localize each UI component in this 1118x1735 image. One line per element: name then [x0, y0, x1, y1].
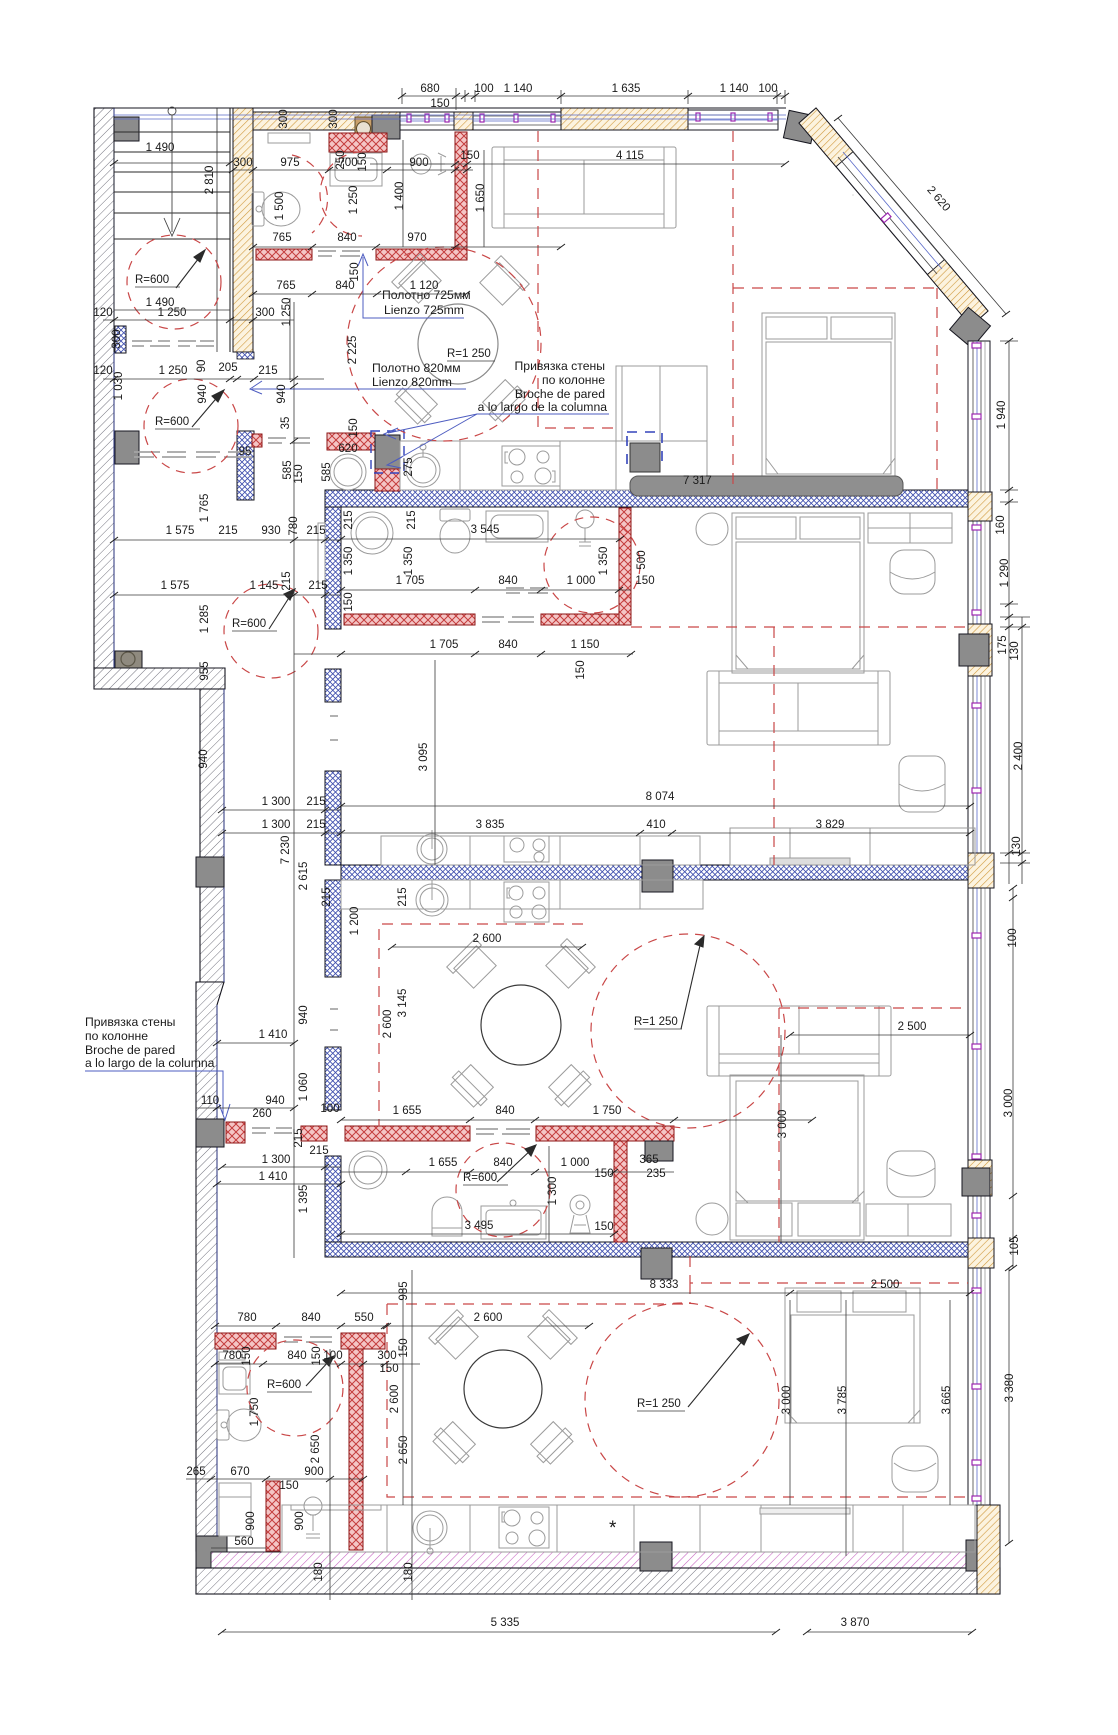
- svg-text:R=600: R=600: [463, 1172, 497, 1184]
- svg-text:205: 205: [218, 362, 237, 374]
- svg-text:930: 930: [261, 525, 280, 537]
- svg-text:1 120: 1 120: [410, 280, 439, 292]
- svg-text:2 810: 2 810: [204, 166, 216, 195]
- svg-text:1 060: 1 060: [298, 1073, 310, 1102]
- svg-text:215: 215: [281, 571, 293, 590]
- svg-text:7 317: 7 317: [683, 475, 712, 487]
- svg-text:150: 150: [635, 575, 654, 587]
- svg-text:1 490: 1 490: [146, 142, 175, 154]
- svg-text:1 575: 1 575: [161, 580, 190, 592]
- svg-text:1 350: 1 350: [403, 547, 415, 576]
- svg-text:365: 365: [639, 1154, 658, 1166]
- svg-text:1 490: 1 490: [146, 297, 175, 309]
- svg-text:8 333: 8 333: [650, 1279, 679, 1291]
- svg-text:1 705: 1 705: [430, 639, 459, 651]
- svg-text:840: 840: [301, 1312, 320, 1324]
- svg-text:1 000: 1 000: [567, 575, 596, 587]
- svg-text:215: 215: [258, 365, 277, 377]
- svg-text:840: 840: [337, 232, 356, 244]
- svg-text:1 655: 1 655: [429, 1157, 458, 1169]
- svg-text:900: 900: [304, 1466, 323, 1478]
- svg-text:1 350: 1 350: [343, 547, 355, 576]
- svg-text:150: 150: [293, 464, 305, 483]
- svg-text:Broche de pared: Broche de pared: [515, 387, 605, 401]
- svg-text:560: 560: [234, 1536, 253, 1548]
- svg-text:150: 150: [594, 1168, 613, 1180]
- svg-text:215: 215: [321, 887, 333, 906]
- svg-text:1 575: 1 575: [166, 525, 195, 537]
- svg-text:215: 215: [343, 510, 355, 529]
- svg-text:300: 300: [278, 109, 290, 128]
- svg-text:670: 670: [230, 1466, 249, 1478]
- svg-text:1 300: 1 300: [262, 819, 291, 831]
- svg-text:260: 260: [252, 1108, 271, 1120]
- svg-text:1 290: 1 290: [999, 559, 1011, 588]
- svg-text:3 000: 3 000: [777, 1110, 789, 1139]
- svg-text:840: 840: [287, 1350, 306, 1362]
- svg-text:1 285: 1 285: [199, 605, 211, 634]
- svg-text:по колонне: по колонне: [85, 1029, 148, 1043]
- svg-text:3 495: 3 495: [465, 1220, 494, 1232]
- svg-text:175: 175: [997, 635, 1009, 654]
- svg-text:130: 130: [1011, 836, 1023, 855]
- svg-text:1 140: 1 140: [720, 83, 749, 95]
- svg-text:840: 840: [498, 639, 517, 651]
- svg-text:985: 985: [398, 1281, 410, 1300]
- svg-text:*: *: [609, 1518, 617, 1539]
- svg-text:Привязка стены: Привязка стены: [515, 359, 605, 373]
- svg-text:150: 150: [379, 1363, 398, 1375]
- svg-text:150: 150: [460, 150, 479, 162]
- svg-text:a lo largo de la columna: a lo largo de la columna: [85, 1056, 215, 1070]
- svg-text:3 665: 3 665: [941, 1386, 953, 1415]
- svg-text:R=600: R=600: [267, 1379, 301, 1391]
- svg-text:110: 110: [201, 1095, 219, 1107]
- svg-text:300: 300: [377, 1350, 396, 1362]
- svg-text:3 095: 3 095: [418, 743, 430, 772]
- svg-text:680: 680: [420, 83, 439, 95]
- svg-text:215: 215: [306, 796, 325, 808]
- svg-text:8 074: 8 074: [646, 791, 675, 803]
- svg-text:2 225: 2 225: [347, 336, 359, 365]
- svg-text:90: 90: [196, 360, 208, 373]
- svg-text:130: 130: [1009, 641, 1021, 660]
- svg-text:250: 250: [335, 150, 347, 169]
- svg-text:Lienzo 725mm: Lienzo 725mm: [384, 303, 464, 317]
- svg-text:100: 100: [474, 83, 493, 95]
- svg-text:840: 840: [495, 1105, 514, 1117]
- svg-text:R=1 250: R=1 250: [634, 1016, 678, 1028]
- svg-text:1 250: 1 250: [348, 186, 360, 215]
- svg-text:2 600: 2 600: [389, 1385, 401, 1414]
- svg-text:235: 235: [646, 1168, 665, 1180]
- svg-text:180: 180: [313, 1562, 325, 1581]
- svg-text:215: 215: [309, 1145, 328, 1157]
- svg-text:Broche de pared: Broche de pared: [85, 1043, 175, 1057]
- svg-text:1 750: 1 750: [249, 1398, 261, 1427]
- svg-text:500: 500: [636, 550, 648, 569]
- svg-text:150: 150: [279, 1480, 298, 1492]
- svg-text:120: 120: [93, 307, 112, 319]
- svg-text:Привязка стены: Привязка стены: [85, 1015, 175, 1029]
- svg-text:1 705: 1 705: [396, 575, 425, 587]
- svg-text:955: 955: [199, 661, 211, 680]
- svg-text:900: 900: [294, 1511, 306, 1530]
- svg-text:1 140: 1 140: [504, 83, 533, 95]
- svg-text:3 829: 3 829: [816, 819, 845, 831]
- svg-text:150: 150: [311, 1346, 323, 1365]
- svg-text:R=600: R=600: [232, 618, 266, 630]
- svg-text:940: 940: [276, 384, 288, 403]
- svg-text:410: 410: [646, 819, 665, 831]
- svg-text:940: 940: [298, 1005, 310, 1024]
- svg-text:1 410: 1 410: [259, 1029, 288, 1041]
- svg-text:2 650: 2 650: [310, 1435, 322, 1464]
- svg-text:215: 215: [306, 525, 325, 537]
- svg-text:1 000: 1 000: [561, 1157, 590, 1169]
- svg-text:1 650: 1 650: [475, 184, 487, 213]
- svg-text:150: 150: [343, 592, 355, 611]
- svg-text:150: 150: [398, 1338, 410, 1357]
- svg-text:265: 265: [186, 1466, 205, 1478]
- svg-text:1 300: 1 300: [262, 796, 291, 808]
- svg-text:2 500: 2 500: [898, 1021, 927, 1033]
- svg-text:900: 900: [409, 157, 428, 169]
- svg-text:2 600: 2 600: [474, 1312, 503, 1324]
- svg-text:1 765: 1 765: [199, 494, 211, 523]
- svg-text:160: 160: [995, 515, 1007, 534]
- svg-text:1 300: 1 300: [262, 1154, 291, 1166]
- svg-text:1 410: 1 410: [259, 1171, 288, 1183]
- svg-text:975: 975: [280, 157, 299, 169]
- svg-text:3 380: 3 380: [1004, 1374, 1016, 1403]
- svg-text:900: 900: [245, 1511, 257, 1530]
- svg-text:1 940: 1 940: [996, 401, 1008, 430]
- svg-text:150: 150: [594, 1221, 613, 1233]
- svg-text:940: 940: [197, 384, 209, 403]
- svg-text:1 250: 1 250: [159, 365, 188, 377]
- svg-text:780: 780: [237, 1312, 256, 1324]
- svg-text:R=1 250: R=1 250: [447, 348, 491, 360]
- svg-text:1 030: 1 030: [113, 372, 125, 401]
- svg-text:180: 180: [403, 1562, 415, 1581]
- svg-text:3 870: 3 870: [841, 1617, 870, 1629]
- svg-text:1 750: 1 750: [593, 1105, 622, 1117]
- svg-text:95: 95: [239, 446, 252, 458]
- svg-text:2 600: 2 600: [473, 933, 502, 945]
- svg-text:1 350: 1 350: [598, 547, 610, 576]
- svg-text:1 395: 1 395: [298, 1185, 310, 1214]
- svg-text:1 655: 1 655: [393, 1105, 422, 1117]
- svg-text:R=600: R=600: [135, 274, 169, 286]
- svg-text:3 835: 3 835: [476, 819, 505, 831]
- svg-text:3 000: 3 000: [781, 1386, 793, 1415]
- svg-text:3 145: 3 145: [397, 989, 409, 1018]
- svg-text:765: 765: [276, 280, 295, 292]
- svg-text:35: 35: [280, 417, 292, 430]
- svg-text:840: 840: [498, 575, 517, 587]
- svg-text:1 500: 1 500: [274, 192, 286, 221]
- svg-text:150: 150: [349, 262, 361, 281]
- svg-text:150: 150: [357, 152, 369, 171]
- svg-text:R=1 250: R=1 250: [637, 1398, 681, 1410]
- svg-text:215: 215: [306, 819, 325, 831]
- svg-text:215: 215: [218, 525, 237, 537]
- svg-text:1 400: 1 400: [394, 182, 406, 211]
- svg-text:840: 840: [493, 1157, 512, 1169]
- svg-text:150: 150: [430, 98, 449, 110]
- svg-text:2 650: 2 650: [398, 1436, 410, 1465]
- svg-text:585: 585: [321, 462, 333, 481]
- svg-text:2 500: 2 500: [871, 1279, 900, 1291]
- svg-text:1 145: 1 145: [250, 580, 279, 592]
- svg-text:3 785: 3 785: [837, 1386, 849, 1415]
- svg-text:1 635: 1 635: [612, 83, 641, 95]
- svg-text:по колонне: по колонне: [542, 373, 605, 387]
- svg-text:3 545: 3 545: [471, 524, 500, 536]
- svg-text:2 400: 2 400: [1013, 742, 1025, 771]
- svg-text:780: 780: [222, 1350, 241, 1362]
- svg-text:7 230: 7 230: [280, 836, 292, 865]
- svg-text:a lo largo de la columna: a lo largo de la columna: [478, 400, 608, 414]
- svg-text:215: 215: [308, 580, 327, 592]
- svg-text:780: 780: [288, 516, 300, 535]
- svg-text:550: 550: [354, 1312, 373, 1324]
- svg-text:940: 940: [198, 749, 210, 768]
- svg-text:100: 100: [1007, 928, 1019, 947]
- svg-text:3 000: 3 000: [1003, 1089, 1015, 1118]
- svg-text:105: 105: [1009, 1236, 1021, 1255]
- svg-text:970: 970: [407, 232, 426, 244]
- svg-text:215: 215: [293, 1128, 305, 1147]
- svg-text:120: 120: [93, 365, 112, 377]
- svg-text:940: 940: [265, 1095, 284, 1107]
- svg-text:2 600: 2 600: [382, 1010, 394, 1039]
- svg-text:300: 300: [328, 109, 340, 128]
- svg-text:Полотно 820мм: Полотно 820мм: [372, 361, 461, 375]
- svg-text:1 200: 1 200: [349, 907, 361, 936]
- svg-text:300: 300: [111, 329, 123, 348]
- svg-text:215: 215: [406, 510, 418, 529]
- svg-text:620: 620: [338, 443, 357, 455]
- svg-text:4 115: 4 115: [616, 150, 644, 162]
- svg-text:300: 300: [233, 157, 252, 169]
- svg-text:300: 300: [255, 307, 274, 319]
- svg-text:275: 275: [403, 457, 415, 476]
- svg-text:2 615: 2 615: [298, 862, 310, 891]
- svg-text:R=600: R=600: [155, 416, 189, 428]
- svg-text:150: 150: [241, 1346, 253, 1365]
- svg-text:100: 100: [758, 83, 777, 95]
- svg-text:5 335: 5 335: [491, 1617, 520, 1629]
- svg-text:765: 765: [272, 232, 291, 244]
- svg-text:100: 100: [320, 1103, 339, 1115]
- svg-text:1 250: 1 250: [281, 298, 293, 327]
- svg-text:Lienzo 820mm: Lienzo 820mm: [372, 375, 452, 389]
- svg-text:215: 215: [397, 887, 409, 906]
- svg-text:150: 150: [348, 418, 360, 437]
- svg-text:1 150: 1 150: [571, 639, 600, 651]
- svg-text:150: 150: [575, 660, 587, 679]
- svg-text:100: 100: [323, 1350, 342, 1362]
